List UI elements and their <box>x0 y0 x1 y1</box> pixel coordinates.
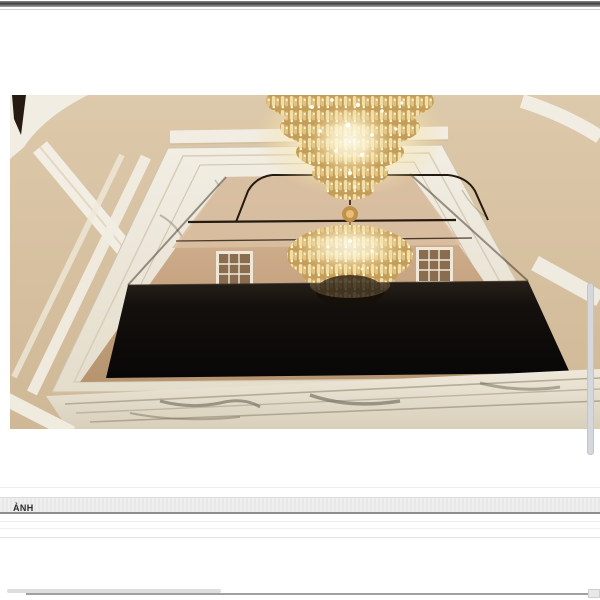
section-header-label: ẢNH <box>13 501 34 515</box>
reflected-window-left <box>216 251 253 288</box>
reflected-window-right <box>416 247 453 284</box>
bottom-rule <box>26 593 600 595</box>
top-rule-dark-line <box>0 1 600 7</box>
divider-line <box>0 528 600 529</box>
top-rule-light-line <box>0 9 600 10</box>
black-panel <box>106 272 570 378</box>
divider-line <box>0 537 600 538</box>
interior-render-art <box>10 95 600 429</box>
divider-line <box>0 487 600 488</box>
vertical-scrollbar-thumb[interactable] <box>587 283 594 455</box>
section-header-strip[interactable]: ẢNH <box>0 497 600 514</box>
divider-line <box>0 521 600 522</box>
interior-render-image[interactable] <box>10 95 600 429</box>
scrollbar-corner-box <box>588 589 600 598</box>
top-horizontal-rule <box>0 0 600 12</box>
